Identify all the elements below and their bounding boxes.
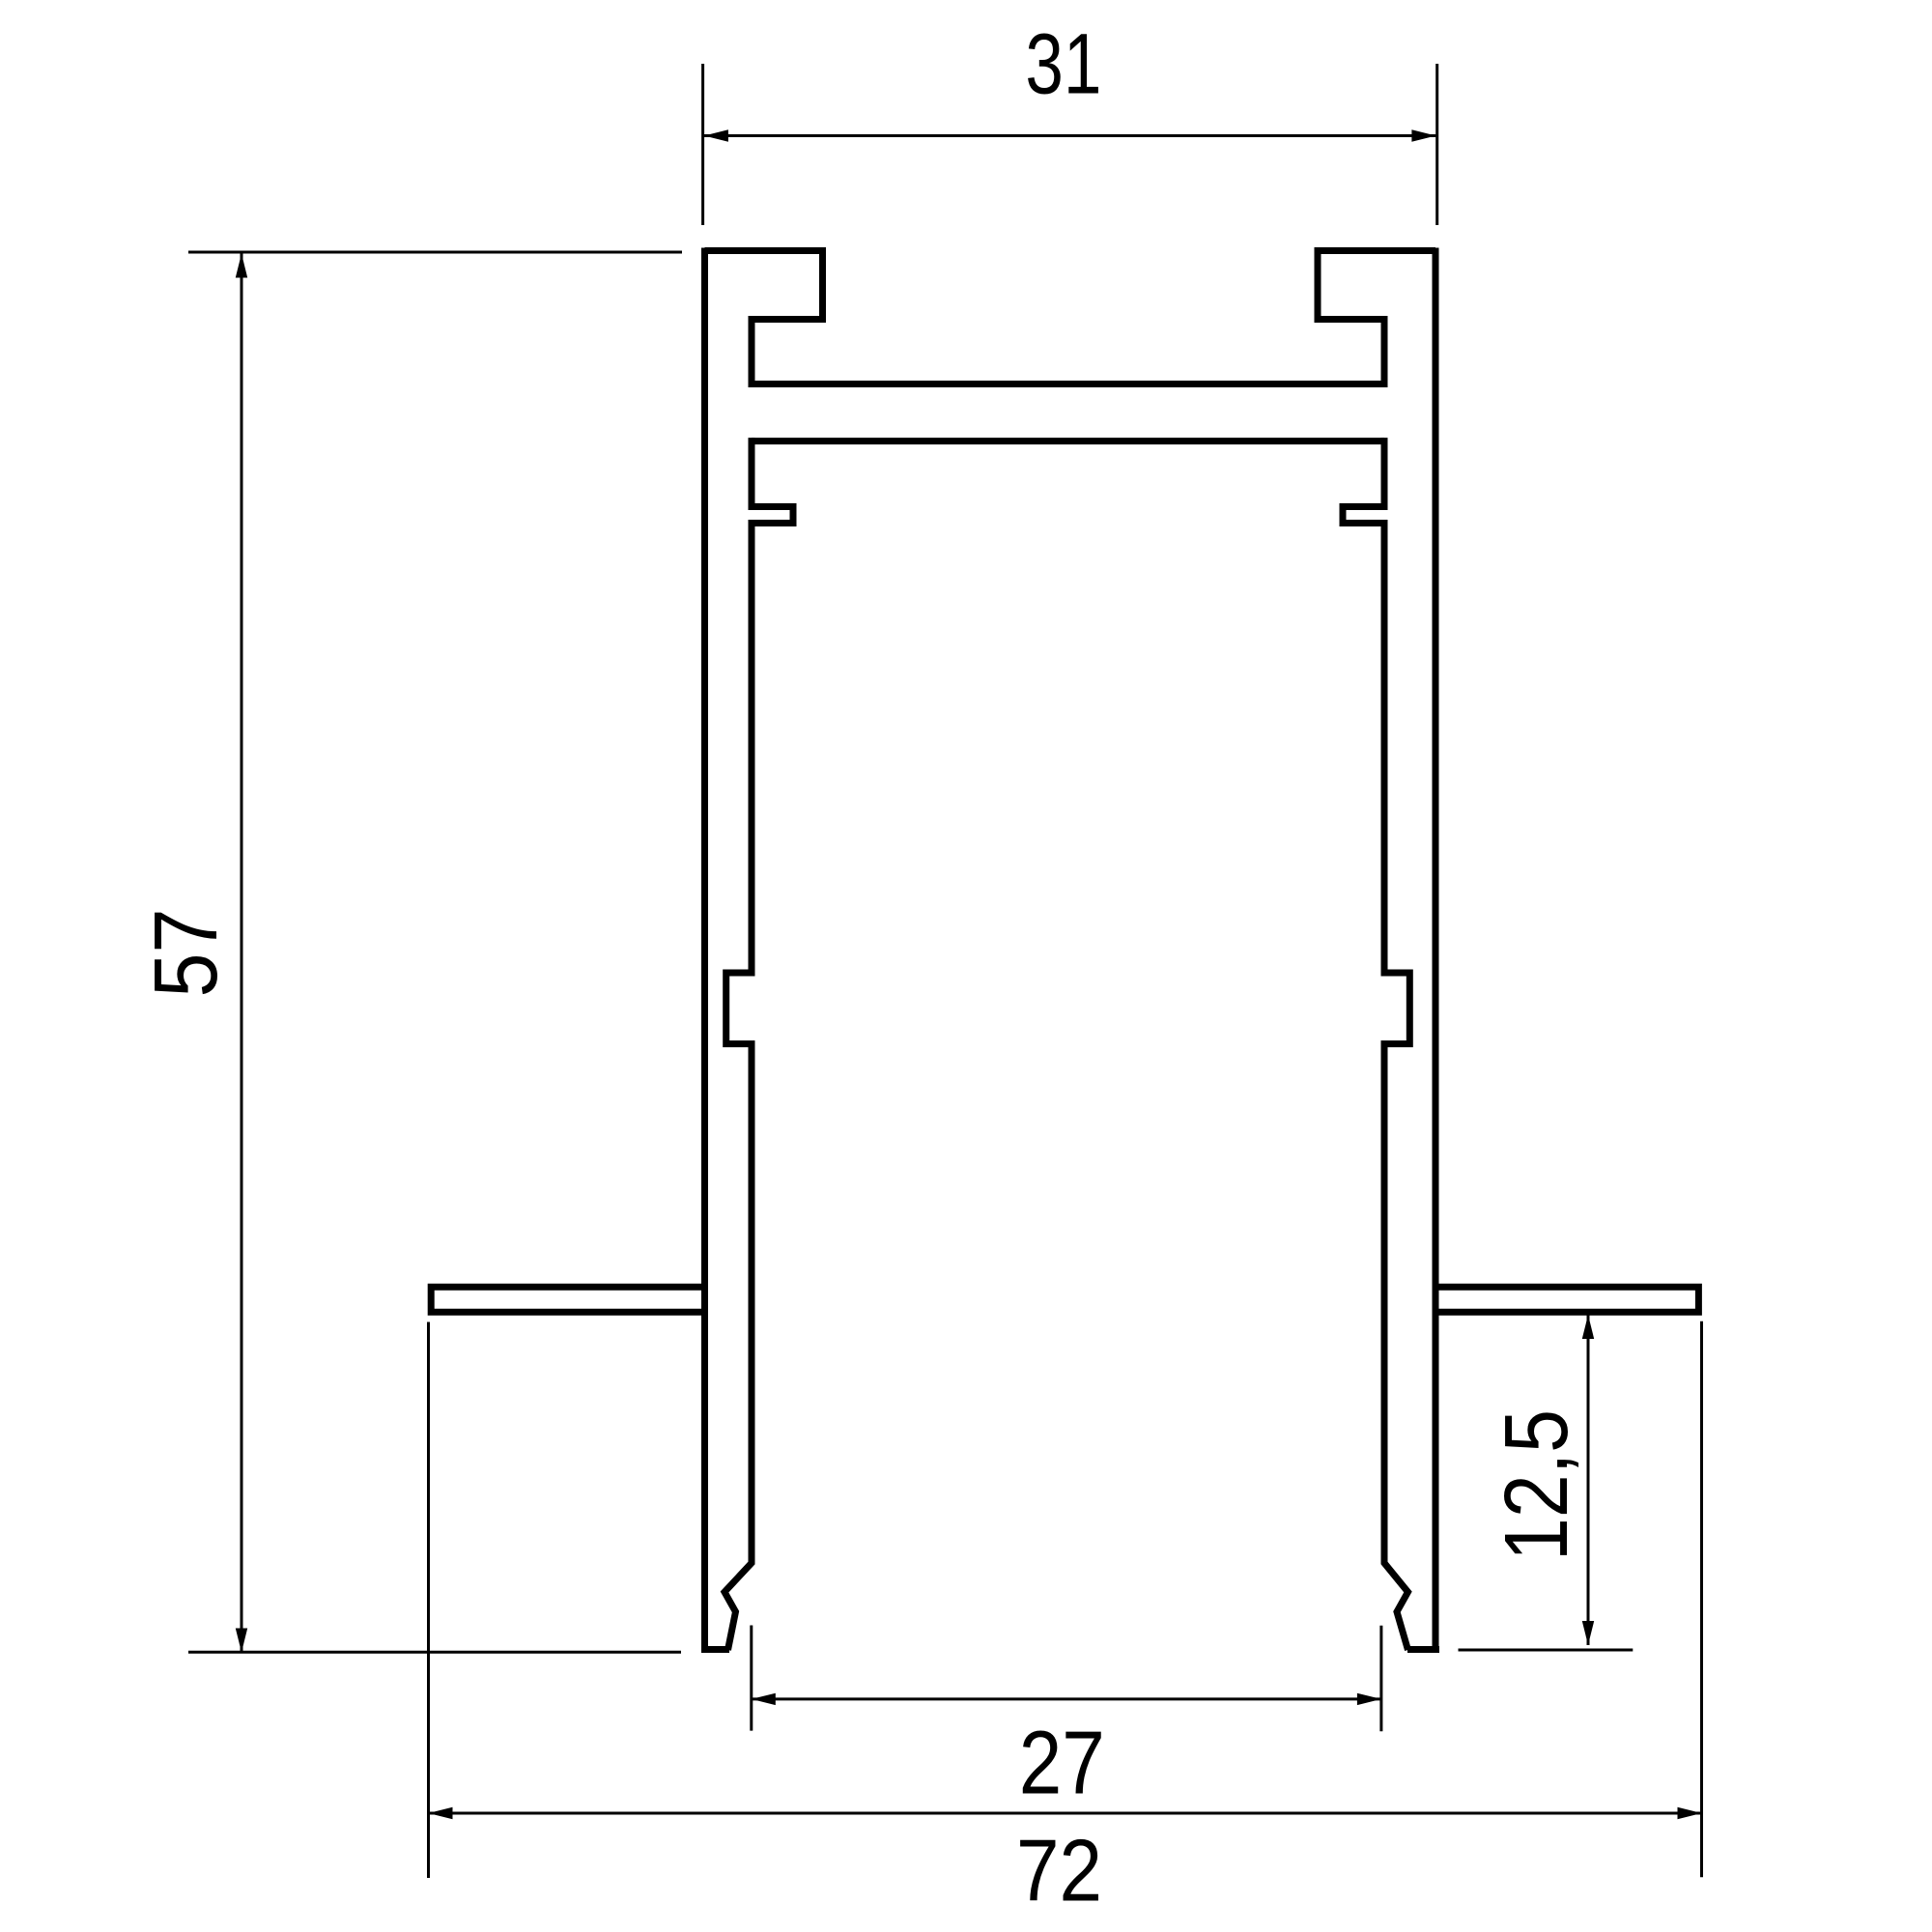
svg-text:27: 27 <box>1019 1713 1105 1813</box>
svg-text:31: 31 <box>1025 15 1101 112</box>
svg-text:12,5: 12,5 <box>1486 1409 1586 1561</box>
svg-text:72: 72 <box>1016 1823 1102 1920</box>
svg-text:57: 57 <box>135 909 236 998</box>
